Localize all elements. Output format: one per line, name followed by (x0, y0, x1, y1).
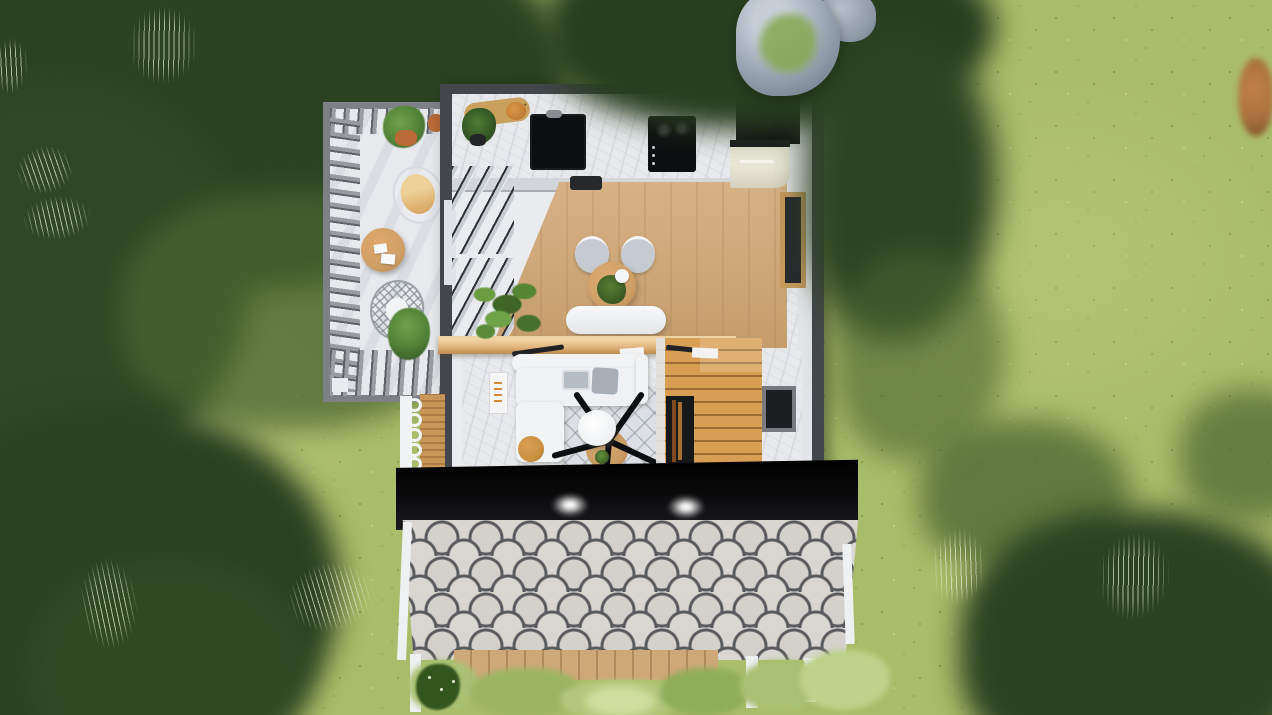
refrigerator-top (730, 140, 790, 147)
book-spine (672, 400, 676, 462)
kitchen-plant-pot (470, 134, 486, 146)
table-paper (373, 243, 387, 254)
stair-window (762, 386, 796, 432)
pergola-beam-left (323, 102, 330, 402)
screen-ring (407, 428, 422, 442)
screen-ring (407, 443, 422, 457)
armchair-cushion (396, 170, 439, 217)
screen-ring (407, 398, 422, 412)
table-paper (381, 253, 396, 264)
ceiling-spotlight (662, 492, 710, 522)
terrace-step (332, 378, 348, 392)
boulder-moss (760, 14, 816, 72)
stair-landing (700, 338, 762, 372)
flower-bloom (440, 688, 443, 691)
flower-bloom (452, 680, 455, 683)
bush (800, 650, 890, 710)
book-spine (678, 402, 682, 460)
plate (615, 269, 629, 283)
wall-art-frame (489, 372, 508, 414)
sofa-tray (562, 370, 590, 390)
kitchen-faucet (546, 110, 562, 118)
bread-loaf (506, 102, 526, 120)
rattan-screen (420, 394, 445, 472)
cooktop-knob (652, 154, 655, 157)
small-tree-top (585, 686, 655, 715)
coffee-table-white (578, 410, 616, 446)
wall-art-print (494, 378, 502, 406)
cooktop-knob (652, 146, 655, 149)
black-ceiling-panel (396, 456, 858, 530)
terracotta-pot (395, 130, 417, 146)
refrigerator (730, 142, 790, 188)
stair-stringer (656, 338, 665, 474)
kitchen-sink (530, 114, 586, 170)
autumn-tree-edge (1238, 58, 1272, 136)
fish-scale-shingle-roof (398, 520, 860, 660)
refrigerator-handle (740, 160, 774, 163)
stairwell-void (666, 396, 694, 466)
aerial-house-render (0, 0, 1272, 715)
dining-bench (566, 306, 666, 334)
wall-slat-shelf-upper (452, 166, 514, 254)
bush (660, 668, 750, 715)
screen-ring (407, 413, 422, 427)
right-wall-window (780, 192, 806, 288)
counter-mat (570, 176, 602, 190)
sofa-cushion (591, 367, 618, 394)
flower-bloom (428, 676, 431, 679)
ceiling-spotlight (546, 490, 594, 520)
coffee-table-plant (595, 450, 609, 464)
cooktop-knob (652, 162, 655, 165)
